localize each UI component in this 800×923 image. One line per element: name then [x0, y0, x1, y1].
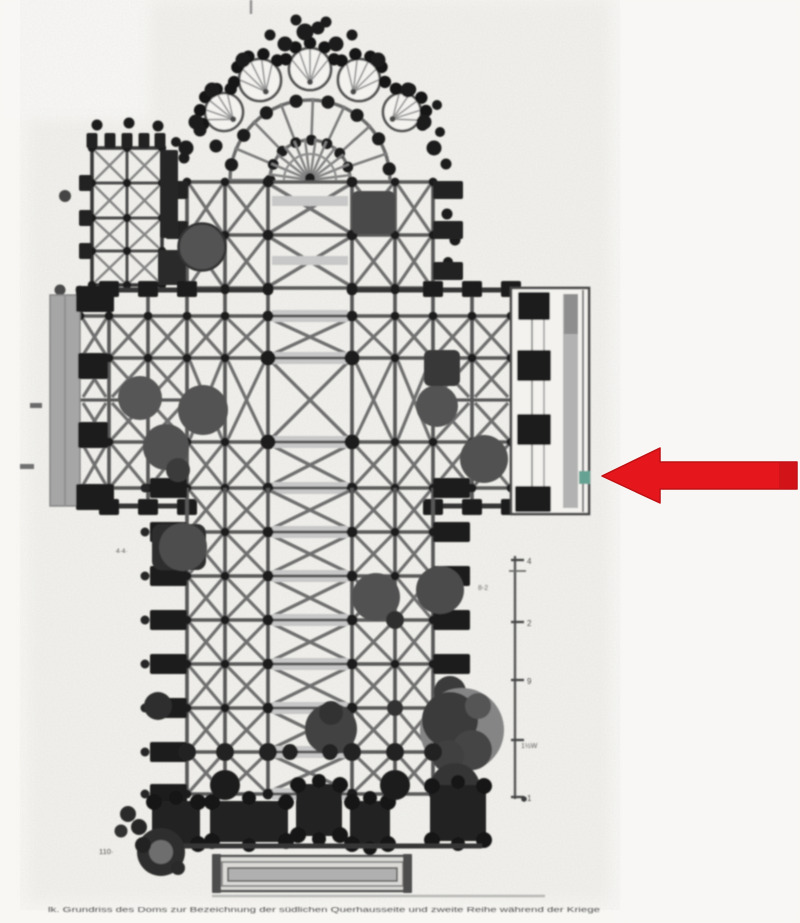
svg-text:4: 4 [527, 557, 532, 566]
svg-text:lk. Grundriss des Doms zur Bez: lk. Grundriss des Doms zur Bezeichnung d… [48, 907, 600, 914]
svg-text:8-2: 8-2 [478, 585, 488, 592]
svg-text:9: 9 [527, 677, 532, 686]
svg-text:2: 2 [527, 619, 532, 628]
svg-text:1: 1 [527, 794, 532, 803]
svg-text:110·: 110· [99, 847, 113, 856]
svg-text:4·4·: 4·4· [116, 548, 128, 555]
svg-text:1½W: 1½W [521, 742, 538, 750]
